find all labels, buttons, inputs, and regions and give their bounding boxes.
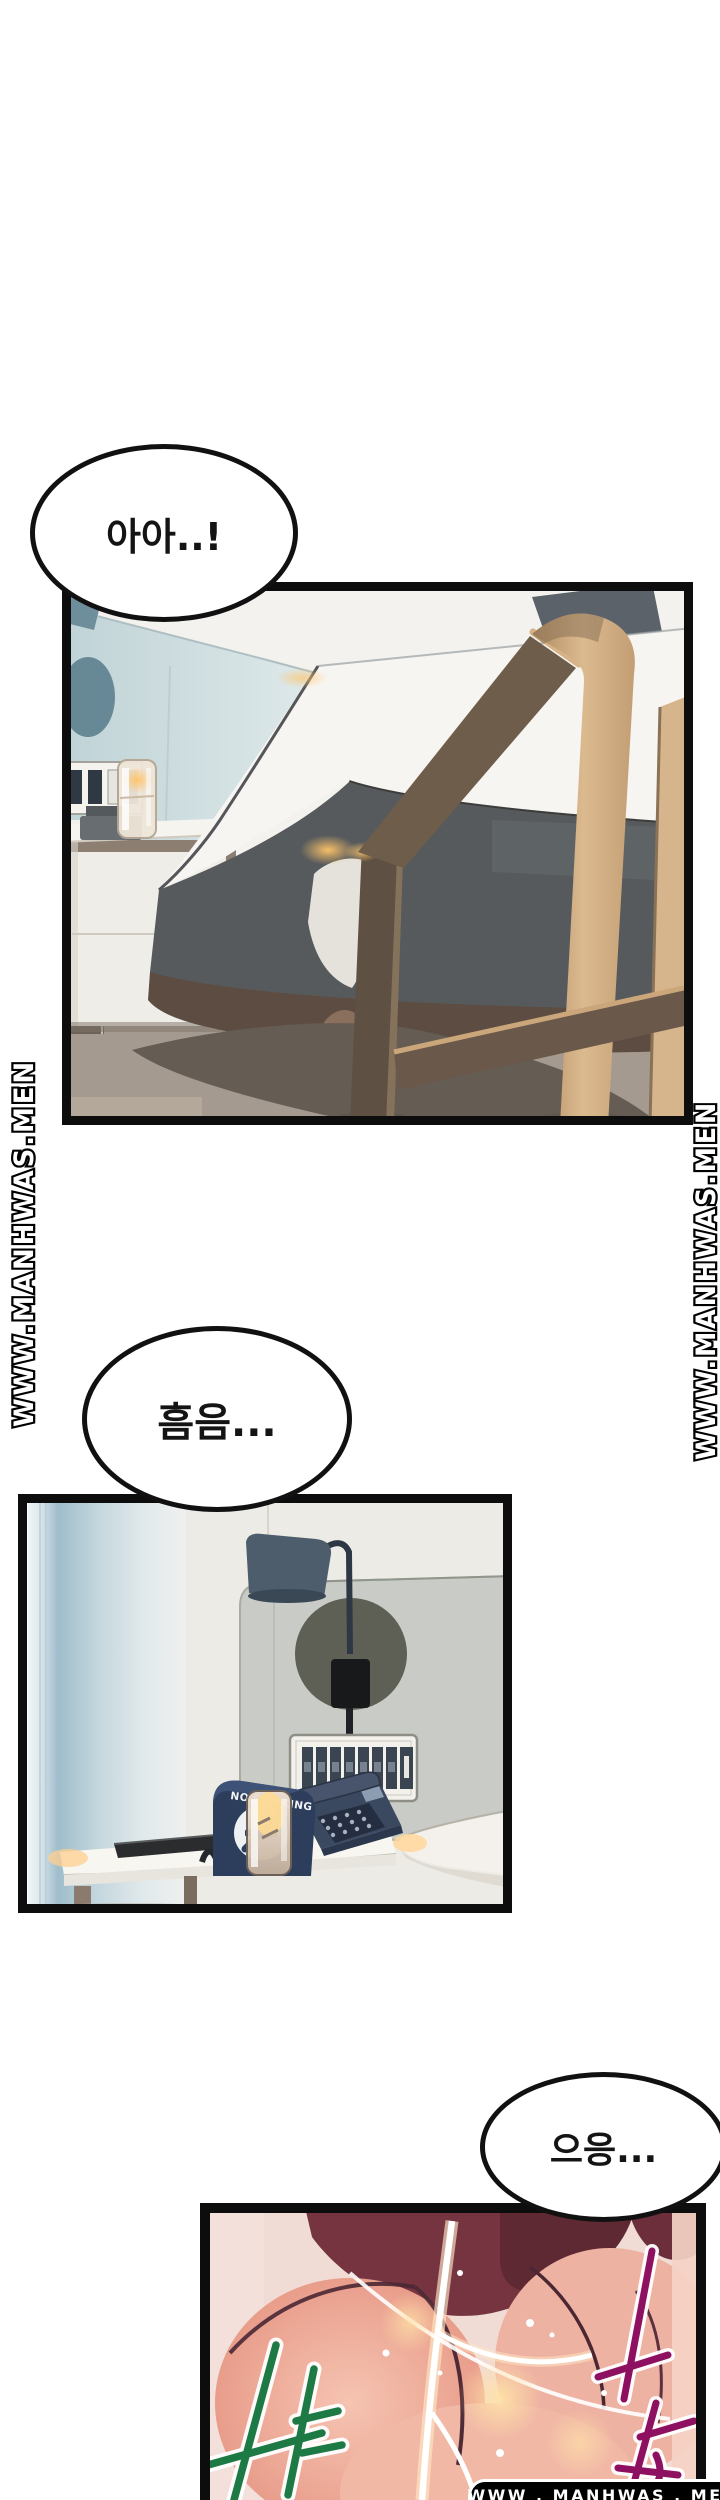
speech-bubble-2: 흠음... bbox=[82, 1326, 352, 1512]
watermark-right-text: WWW.MANHWAS.MEN bbox=[691, 1100, 720, 1460]
speech-bubble-1-text: 아아..! bbox=[106, 506, 222, 561]
watermark-left-text: WWW.MANHWAS.MEN bbox=[9, 1059, 40, 1427]
speech-bubble-3-text: 으응... bbox=[550, 2121, 657, 2173]
watermark-right: WWW.MANHWAS.MEN bbox=[690, 1080, 720, 1464]
webtoon-page: NO SMOKING bbox=[0, 0, 720, 2500]
panel-1 bbox=[62, 582, 693, 1125]
water-glass bbox=[118, 760, 156, 838]
speech-bubble-3: 으응... bbox=[480, 2072, 720, 2222]
site-badge-text: WWW . MANHWAS . MEN bbox=[467, 2486, 720, 2500]
speech-bubble-2-text: 흠음... bbox=[157, 1390, 276, 1448]
glass-of-water bbox=[247, 1791, 291, 1875]
panel-3 bbox=[200, 2203, 706, 2500]
site-badge: WWW . MANHWAS . MEN bbox=[468, 2479, 720, 2500]
watermark-left: WWW.MANHWAS.MEN bbox=[2, 1048, 46, 1432]
speech-bubble-1: 아아..! bbox=[30, 444, 298, 622]
panel-2: NO SMOKING bbox=[18, 1494, 512, 1913]
